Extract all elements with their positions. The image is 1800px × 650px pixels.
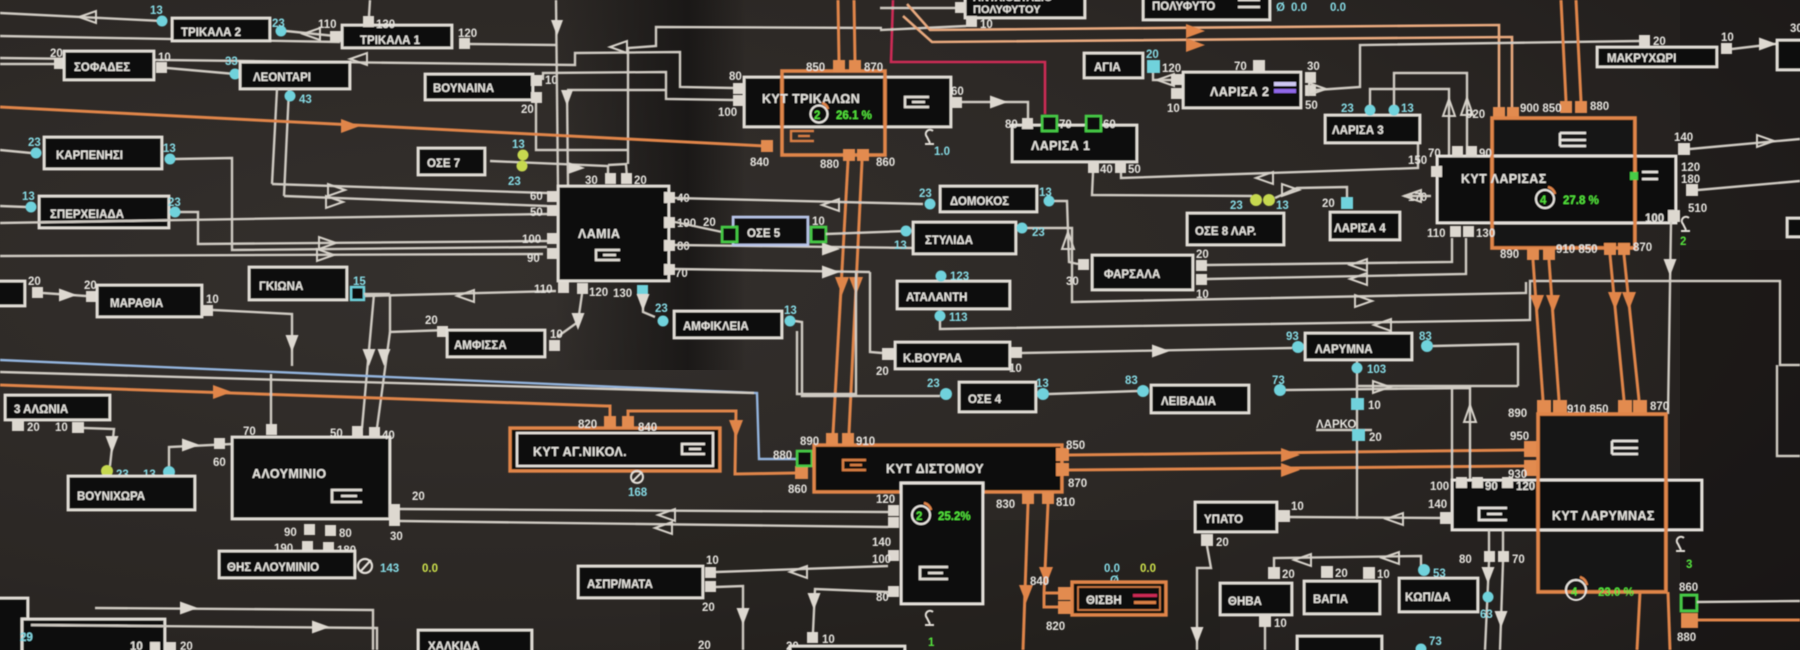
svg-text:920: 920 [1466,109,1485,121]
svg-text:110: 110 [534,284,553,296]
svg-text:10: 10 [1167,103,1180,115]
svg-text:103: 103 [1367,364,1386,376]
svg-text:ΥΠΑΤΟ: ΥΠΑΤΟ [1204,514,1243,526]
svg-text:20: 20 [702,602,715,614]
svg-text:23.0 %: 23.0 % [1598,587,1634,599]
svg-text:10: 10 [55,422,68,434]
svg-text:10: 10 [706,555,719,567]
svg-text:20: 20 [1335,568,1348,580]
svg-text:ΒΑΓΙΑ: ΒΑΓΙΑ [1313,594,1348,606]
svg-text:23: 23 [1032,227,1045,239]
svg-text:50: 50 [330,428,343,440]
svg-text:70: 70 [243,426,256,438]
svg-text:13: 13 [784,305,797,317]
svg-text:60: 60 [1103,119,1116,131]
svg-text:90: 90 [284,527,297,539]
svg-text:20: 20 [521,104,534,116]
svg-text:23: 23 [168,197,181,209]
svg-text:90: 90 [527,253,540,265]
svg-text:ΑΜΦΙΣΣΑ: ΑΜΦΙΣΣΑ [454,340,507,352]
svg-text:10: 10 [812,216,825,228]
svg-text:80: 80 [1005,119,1018,131]
svg-text:30: 30 [390,531,403,543]
svg-text:110: 110 [318,19,337,31]
svg-text:ΔΟΜΟΚΟΣ: ΔΟΜΟΚΟΣ [950,196,1009,208]
svg-text:ΤΡΙΚΑΛΑ 1: ΤΡΙΚΑΛΑ 1 [360,35,421,47]
svg-text:13: 13 [1276,200,1289,212]
svg-text:910: 910 [856,436,875,448]
svg-text:ΛΑΜΙΑ: ΛΑΜΙΑ [578,227,620,241]
svg-text:100: 100 [1430,481,1449,493]
svg-text:93: 93 [1286,331,1299,343]
svg-text:13: 13 [894,240,907,252]
svg-text:13: 13 [163,143,176,155]
svg-text:10: 10 [1721,32,1734,44]
svg-text:23: 23 [28,137,41,149]
svg-text:880: 880 [820,159,839,171]
svg-text:0.0: 0.0 [1330,2,1346,14]
svg-text:890: 890 [1500,249,1519,261]
svg-text:ΜΑΡΑΘΙΑ: ΜΑΡΑΘΙΑ [110,298,163,310]
svg-text:63: 63 [1480,609,1493,621]
svg-text:ΑΣΠΡ/ΜΑΤΑ: ΑΣΠΡ/ΜΑΤΑ [587,579,653,591]
svg-text:10: 10 [1274,618,1287,630]
svg-text:0.0: 0.0 [422,563,438,575]
svg-text:113: 113 [949,312,968,324]
svg-text:50: 50 [1128,164,1141,176]
svg-text:10: 10 [206,294,219,306]
svg-text:820: 820 [1046,621,1065,633]
svg-text:ΜΑΚΡΥΧΩΡΙ: ΜΑΚΡΥΧΩΡΙ [1607,53,1676,65]
svg-text:120: 120 [1162,63,1181,75]
svg-text:20: 20 [698,640,711,650]
svg-text:20: 20 [703,217,716,229]
svg-text:60: 60 [530,191,543,203]
svg-text:ΒΟΥΝΑΙΝΑ: ΒΟΥΝΑΙΝΑ [433,83,494,95]
svg-text:ΑΤΑΛΑΝΤΗ: ΑΤΑΛΑΝΤΗ [906,292,967,304]
svg-text:ΓΚΙΩΝΑ: ΓΚΙΩΝΑ [259,281,303,293]
svg-text:900 850: 900 850 [1520,103,1562,115]
svg-text:20: 20 [27,422,40,434]
svg-text:20: 20 [1196,249,1209,261]
svg-text:ΚΥΤ ΔΙΣΤΟΜΟΥ: ΚΥΤ ΔΙΣΤΟΜΟΥ [886,462,984,476]
svg-text:27.8 %: 27.8 % [1563,195,1599,207]
svg-text:20: 20 [1653,36,1666,48]
svg-text:ΚΥΤ ΛΑΡΙΣΑΣ: ΚΥΤ ΛΑΡΙΣΑΣ [1461,172,1547,186]
svg-text:130: 130 [376,19,395,31]
svg-text:ΟΣΕ 5: ΟΣΕ 5 [747,228,781,240]
svg-text:ΚΥΤ ΛΑΡΥΜΝΑΣ: ΚΥΤ ΛΑΡΥΜΝΑΣ [1552,509,1655,523]
svg-text:860: 860 [1679,582,1698,594]
svg-text:ΛΑΡΙΣΑ 3: ΛΑΡΙΣΑ 3 [1332,125,1384,137]
svg-text:20: 20 [425,315,438,327]
svg-text:80: 80 [339,528,352,540]
svg-text:ΣΟΦΑΔΕΣ: ΣΟΦΑΔΕΣ [74,62,130,74]
svg-text:70: 70 [1059,119,1072,131]
svg-text:10: 10 [1291,501,1304,513]
svg-text:ΛΑΡΥΜΝΑ: ΛΑΡΥΜΝΑ [1315,344,1373,356]
svg-text:23: 23 [508,176,521,188]
svg-text:20: 20 [1146,49,1159,61]
svg-text:860: 860 [876,157,895,169]
svg-text:140: 140 [1428,499,1447,511]
svg-text:ΛΑΡΙΣΑ 1: ΛΑΡΙΣΑ 1 [1031,139,1090,153]
svg-text:ΛΑΡΙΣΑ 2: ΛΑΡΙΣΑ 2 [1210,85,1269,99]
svg-text:ΟΣΕ 8 ΛΑΡ.: ΟΣΕ 8 ΛΑΡ. [1195,226,1256,238]
svg-text:90: 90 [1479,148,1492,160]
svg-text:ΘΙΣΒΗ: ΘΙΣΒΗ [1086,595,1122,607]
svg-text:ΘΗΒΑ: ΘΗΒΑ [1228,596,1262,608]
svg-text:13: 13 [1039,187,1052,199]
svg-text:ΚΩΠ/ΔΑ: ΚΩΠ/ΔΑ [1405,592,1451,604]
svg-text:ΧΑΛΚΙΔΑ: ΧΑΛΚΙΔΑ [428,641,480,650]
svg-text:120: 120 [1681,162,1700,174]
svg-text:2: 2 [1680,236,1686,248]
svg-text:840: 840 [1030,576,1049,588]
svg-text:20: 20 [1282,569,1295,581]
svg-text:100: 100 [522,234,541,246]
svg-text:870: 870 [1068,478,1087,490]
svg-text:100: 100 [872,554,891,566]
svg-text:850: 850 [806,62,825,74]
svg-text:23: 23 [655,303,668,315]
svg-text:140: 140 [1674,132,1693,144]
svg-text:83: 83 [1125,375,1138,387]
svg-text:ΠΟΛΥΦΥΤΟ: ΠΟΛΥΦΥΤΟ [1152,1,1215,13]
svg-text:ΚΑΡΠΕΝΗΣΙ: ΚΑΡΠΕΝΗΣΙ [56,150,123,162]
svg-text:120: 120 [589,287,608,299]
svg-text:33: 33 [225,56,238,68]
svg-text:80: 80 [729,71,742,83]
svg-text:4: 4 [1571,587,1578,599]
svg-text:10: 10 [1377,569,1390,581]
svg-text:100: 100 [718,107,737,119]
svg-text:870: 870 [864,62,883,74]
svg-text:20: 20 [28,276,41,288]
svg-text:Κ.ΒΟΥΡΛΑ: Κ.ΒΟΥΡΛΑ [903,353,962,365]
svg-text:110: 110 [1427,228,1446,240]
svg-text:80: 80 [677,241,690,253]
svg-text:890: 890 [1508,408,1527,420]
svg-text:130: 130 [1476,228,1495,240]
svg-text:ΛΕΟΝΤΑΡΙ: ΛΕΟΝΤΑΡΙ [253,72,311,84]
svg-text:810: 810 [1056,497,1075,509]
svg-text:25.2%: 25.2% [938,511,971,523]
svg-text:ΛΑΡΙΣΑ 4: ΛΑΡΙΣΑ 4 [1334,223,1386,235]
svg-text:73: 73 [1272,375,1285,387]
svg-text:30: 30 [1790,23,1800,35]
svg-text:0.0: 0.0 [1140,563,1156,575]
svg-text:880: 880 [1677,632,1696,644]
svg-text:70: 70 [1512,554,1525,566]
svg-text:80: 80 [1459,554,1472,566]
svg-text:120: 120 [458,28,477,40]
svg-text:820: 820 [578,419,597,431]
svg-text:840: 840 [750,157,769,169]
svg-text:10: 10 [1368,400,1381,412]
svg-text:830: 830 [996,499,1015,511]
svg-text:168: 168 [628,487,648,499]
svg-text:60: 60 [951,86,964,98]
svg-text:123: 123 [950,271,969,283]
svg-text:20: 20 [634,175,647,187]
svg-text:130: 130 [613,288,632,300]
svg-text:13: 13 [1401,103,1414,115]
svg-text:ΟΣΕ 4: ΟΣΕ 4 [968,394,1002,406]
svg-text:ΑΛΟΥΜΙΝΙΟ: ΑΛΟΥΜΙΝΙΟ [252,467,326,481]
svg-text:13: 13 [22,191,35,203]
svg-text:ΚΥΤ ΤΡΙΚΑΛΩΝ: ΚΥΤ ΤΡΙΚΑΛΩΝ [762,92,860,106]
svg-text:20: 20 [1322,198,1335,210]
svg-text:ΒΟΥΝΙΧΩΡΑ: ΒΟΥΝΙΧΩΡΑ [77,491,145,503]
svg-text:23: 23 [1341,103,1354,115]
svg-text:30: 30 [585,175,598,187]
svg-text:20: 20 [876,366,889,378]
svg-text:140: 140 [872,537,891,549]
svg-text:ΤΡΙΚΑΛΑ 2: ΤΡΙΚΑΛΑ 2 [181,27,241,39]
svg-text:880: 880 [1590,101,1609,113]
svg-text:40: 40 [1100,164,1113,176]
svg-text:80: 80 [876,592,889,604]
svg-text:950: 950 [1510,431,1529,443]
svg-text:20: 20 [50,48,63,60]
svg-text:2: 2 [814,110,820,122]
svg-text:910 850: 910 850 [1556,244,1598,256]
svg-text:20: 20 [180,641,193,650]
svg-text:870: 870 [1650,401,1669,413]
svg-text:120: 120 [876,494,895,506]
svg-text:143: 143 [380,563,399,575]
svg-text:ΦΑΡΣΑΛΑ: ΦΑΡΣΑΛΑ [1104,269,1160,281]
svg-text:23: 23 [919,188,932,200]
svg-text:ΟΣΕ 7: ΟΣΕ 7 [427,158,460,170]
svg-text:73: 73 [1429,636,1442,648]
svg-text:1: 1 [928,637,935,649]
svg-text:ΘΗΣ ΑΛΟΥΜΙΝΙΟ: ΘΗΣ ΑΛΟΥΜΙΝΙΟ [227,562,319,574]
svg-text:23: 23 [1230,200,1243,212]
svg-text:13: 13 [150,5,163,17]
svg-text:10: 10 [822,634,835,646]
svg-text:510: 510 [1688,203,1707,215]
svg-text:13: 13 [1036,378,1049,390]
svg-text:ΣΠΕΡΧΕΙΑΔΑ: ΣΠΕΡΧΕΙΑΔΑ [50,209,124,221]
svg-text:3: 3 [1686,559,1692,571]
svg-text:150: 150 [1408,155,1427,167]
svg-text:880: 880 [773,450,792,462]
svg-text:ΠΟΛΥΦΥΤΟΥ: ΠΟΛΥΦΥΤΟΥ [973,4,1041,16]
svg-text:2: 2 [916,511,922,523]
svg-text:Ø: Ø [1276,2,1285,14]
svg-text:10: 10 [1196,289,1209,301]
svg-text:ΣΤΥΛΙΔΑ: ΣΤΥΛΙΔΑ [925,235,973,247]
svg-text:0.0: 0.0 [1104,563,1120,575]
svg-text:10: 10 [130,641,143,650]
svg-text:ΑΜΦΙΚΛΕΙΑ: ΑΜΦΙΚΛΕΙΑ [683,321,749,333]
svg-text:20: 20 [412,491,425,503]
svg-text:1.0: 1.0 [934,146,950,158]
svg-text:29: 29 [20,632,33,644]
svg-text:10: 10 [158,52,171,64]
svg-text:26.1 %: 26.1 % [836,110,872,122]
svg-text:10: 10 [1009,363,1022,375]
svg-text:20: 20 [1216,537,1229,549]
svg-text:20: 20 [84,280,97,292]
svg-text:23: 23 [927,378,940,390]
svg-text:ΚΥΤ ΑΓ.ΝΙΚΟΛ.: ΚΥΤ ΑΓ.ΝΙΚΟΛ. [533,445,627,459]
svg-text:23: 23 [272,18,285,30]
svg-text:70: 70 [1428,148,1441,160]
svg-text:120: 120 [1516,481,1535,493]
svg-text:840: 840 [638,422,657,434]
svg-text:13: 13 [512,139,525,151]
svg-text:10: 10 [550,329,563,341]
svg-text:870: 870 [1633,242,1652,254]
svg-text:43: 43 [299,94,312,106]
svg-text:50: 50 [1305,100,1318,112]
svg-text:30: 30 [1307,61,1320,73]
svg-text:860: 860 [788,484,807,496]
svg-text:4: 4 [1540,195,1547,207]
svg-text:890: 890 [800,436,819,448]
svg-text:50: 50 [530,207,543,219]
svg-text:15: 15 [353,276,366,288]
svg-text:100: 100 [1645,213,1664,225]
svg-text:60: 60 [213,457,226,469]
svg-text:ΑΓΙΑ: ΑΓΙΑ [1094,62,1121,74]
svg-text:850: 850 [1066,440,1085,452]
svg-text:20: 20 [1369,432,1382,444]
svg-text:90: 90 [1485,481,1498,493]
svg-text:ΛΕΙΒΑΔΙΑ: ΛΕΙΒΑΔΙΑ [1161,396,1216,408]
svg-text:0.0: 0.0 [1291,2,1307,14]
svg-text:3 ΑΛΩΝΙΑ: 3 ΑΛΩΝΙΑ [14,404,68,416]
svg-text:83: 83 [1419,331,1432,343]
svg-text:40: 40 [382,430,395,442]
svg-text:70: 70 [1234,61,1247,73]
